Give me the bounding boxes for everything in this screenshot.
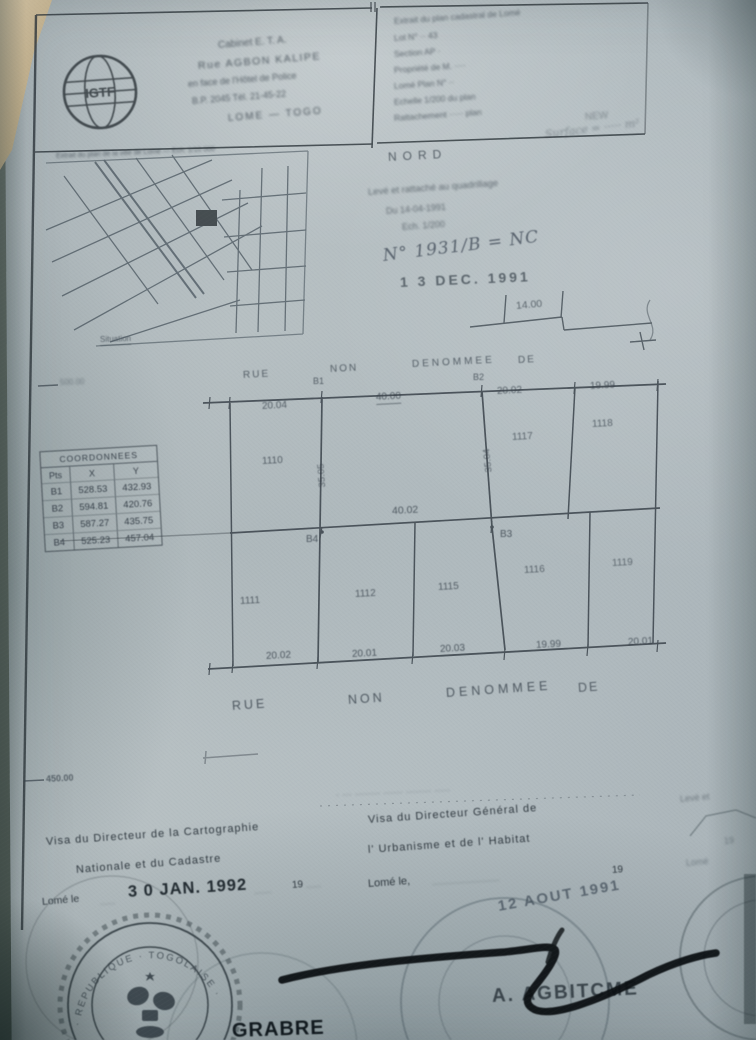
signature-scrawl [282,930,716,1012]
scanned-cadastral-plan: IGTF Cabinet E. T. A. Rue AGBON KALIPE e… [0,0,756,1040]
stamps-and-signature-overlay: · REPUBLIQUE · TOGOLAISE · [0,0,756,1040]
stamp-fragments-right [680,810,756,1040]
round-stamp-left: · REPUBLIQUE · TOGOLAISE · [26,876,240,1040]
round-stamp-center [167,898,609,1040]
